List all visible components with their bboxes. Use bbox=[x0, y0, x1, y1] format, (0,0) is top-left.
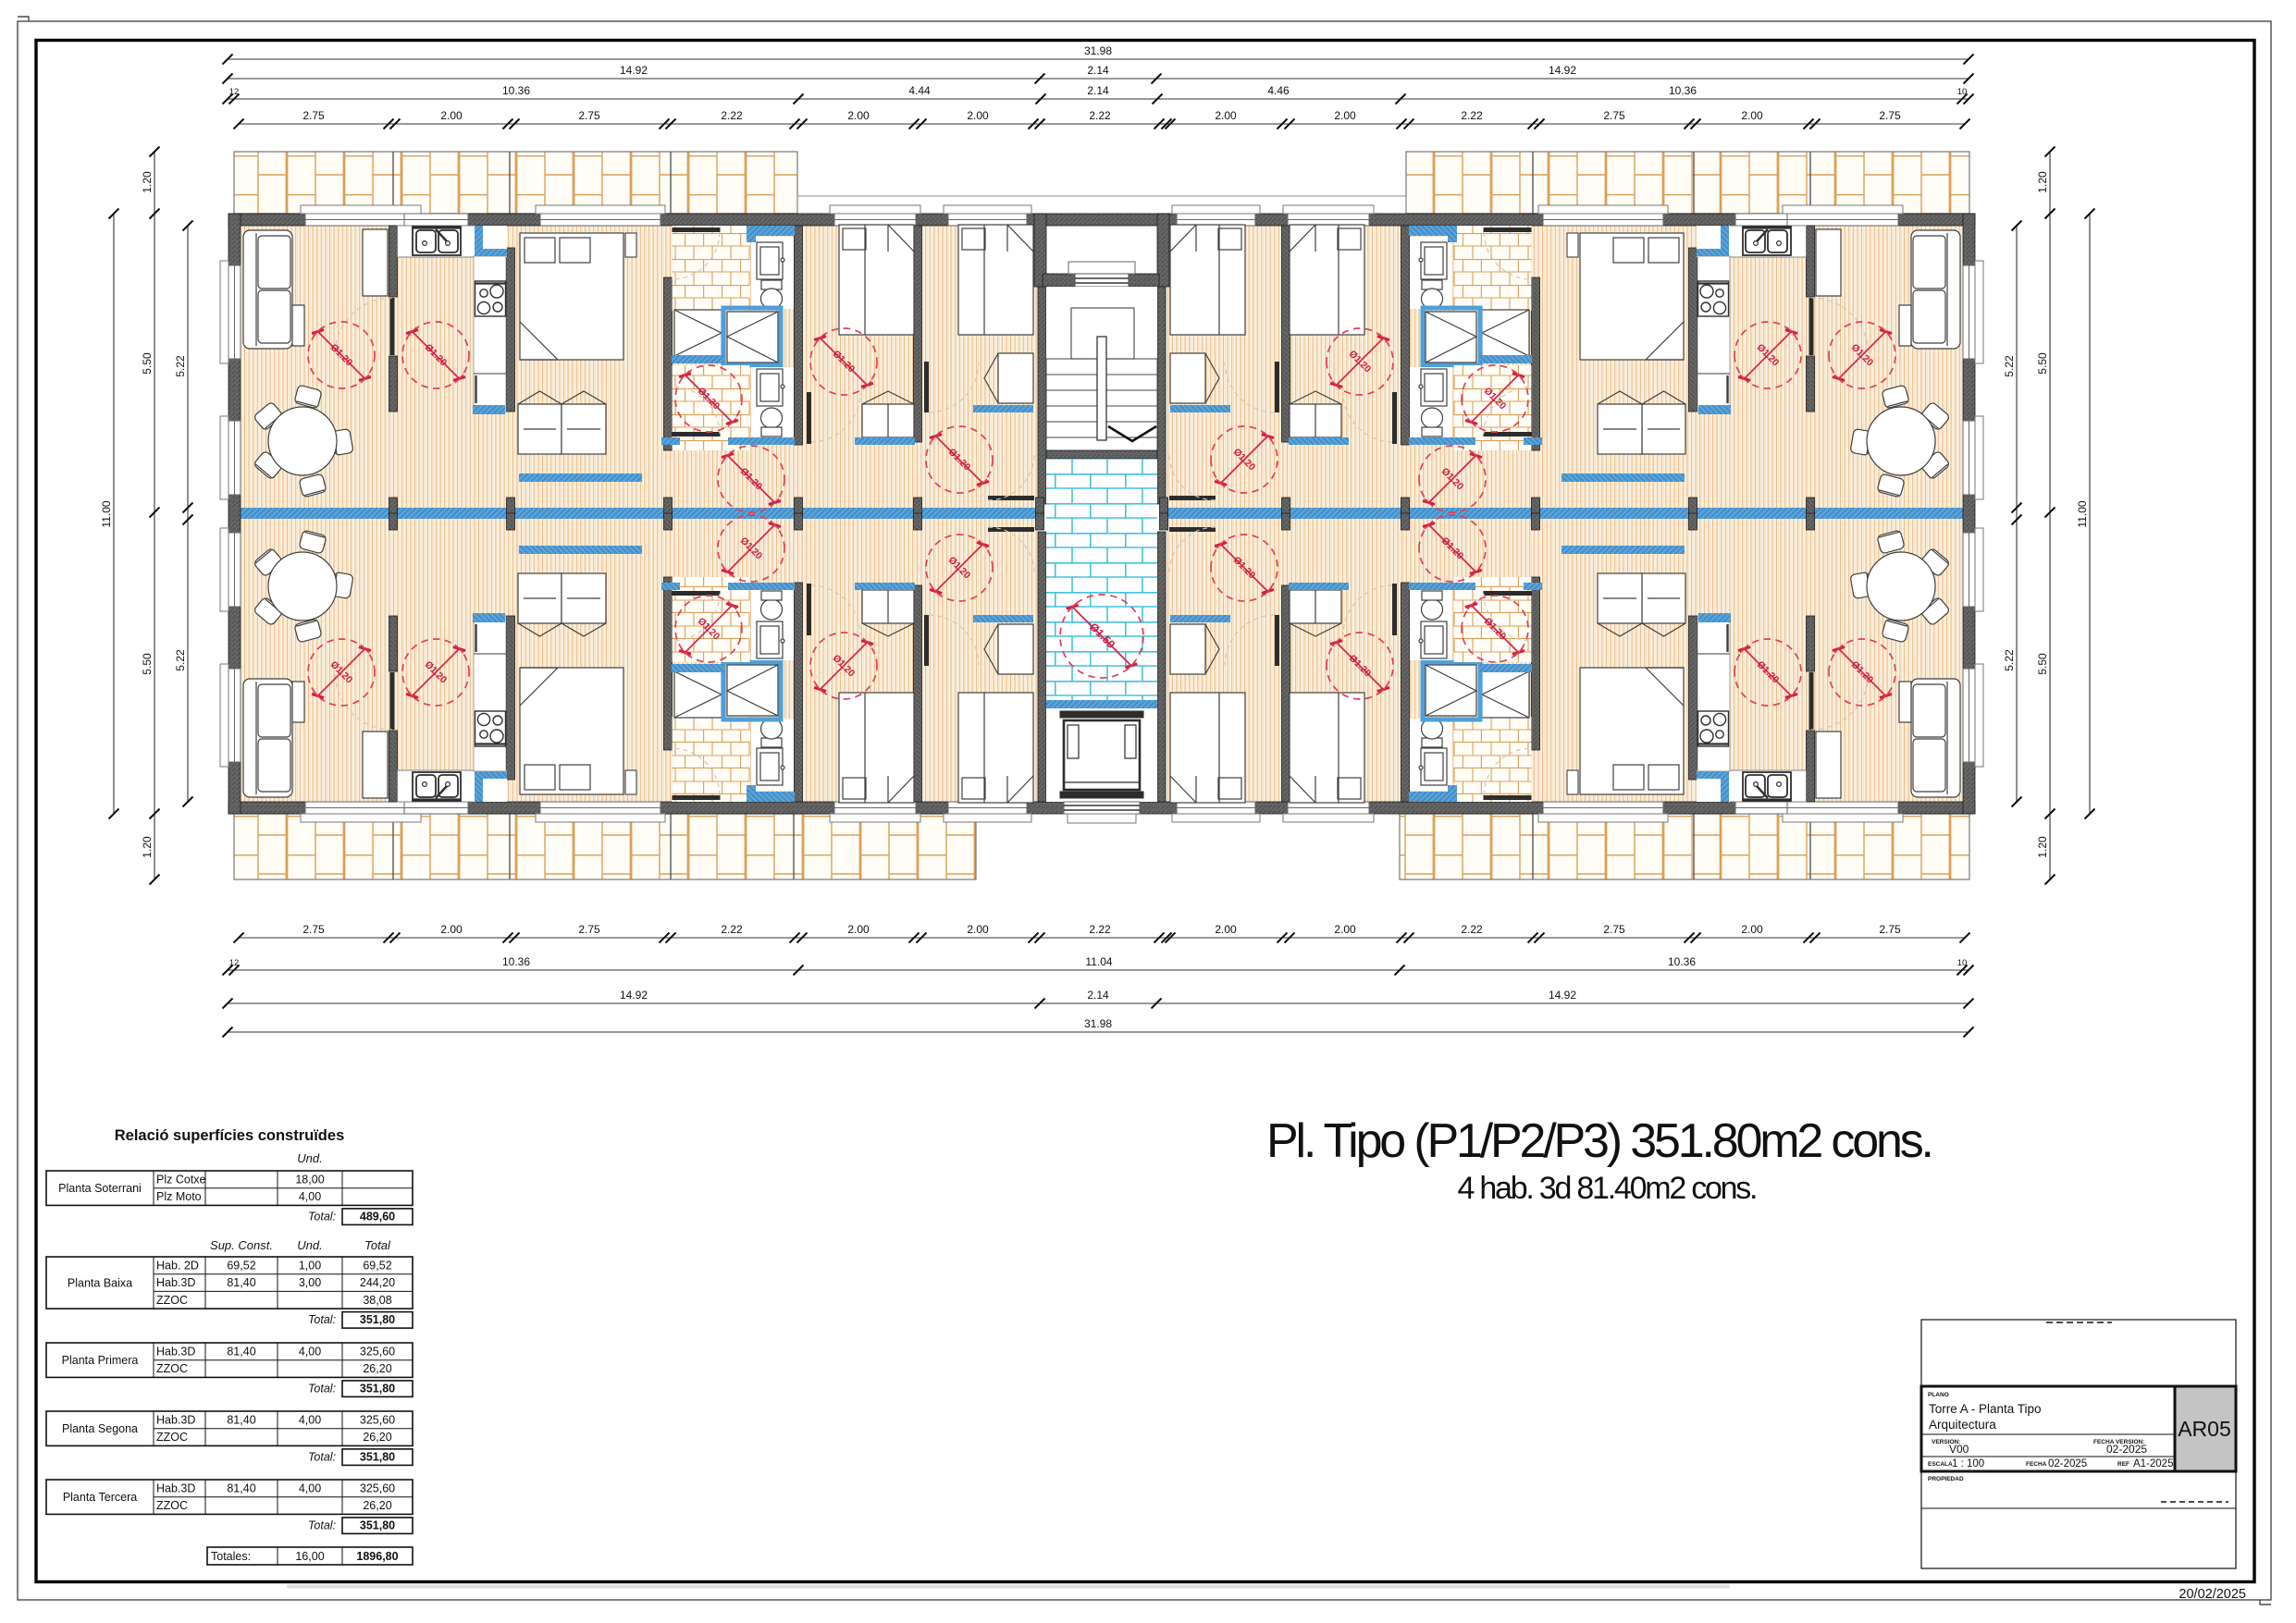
svg-text:244,20: 244,20 bbox=[360, 1276, 395, 1289]
svg-text:81,40: 81,40 bbox=[227, 1346, 255, 1359]
svg-text:5.50: 5.50 bbox=[141, 653, 154, 675]
svg-text:Und.: Und. bbox=[297, 1151, 322, 1165]
svg-text:2.75: 2.75 bbox=[1879, 109, 1901, 122]
svg-text:Sup. Const.: Sup. Const. bbox=[210, 1238, 273, 1252]
svg-text:4,00: 4,00 bbox=[299, 1346, 321, 1359]
svg-text:2.00: 2.00 bbox=[1334, 109, 1356, 122]
svg-text:2.75: 2.75 bbox=[578, 109, 600, 122]
svg-text:02-2025: 02-2025 bbox=[2106, 1443, 2147, 1456]
svg-text:10: 10 bbox=[1957, 87, 1968, 97]
svg-text:2.75: 2.75 bbox=[302, 923, 325, 936]
svg-text:A1-2025: A1-2025 bbox=[2133, 1458, 2173, 1469]
svg-text:2.14: 2.14 bbox=[1087, 64, 1109, 77]
svg-text:5.50: 5.50 bbox=[2036, 653, 2049, 675]
svg-text:1.20: 1.20 bbox=[141, 171, 154, 193]
svg-text:10.36: 10.36 bbox=[1669, 84, 1697, 97]
svg-text:REF: REF bbox=[2117, 1461, 2129, 1468]
svg-text:02-2025: 02-2025 bbox=[2048, 1458, 2087, 1469]
svg-text:PLANO: PLANO bbox=[1928, 1392, 1949, 1398]
svg-text:4,00: 4,00 bbox=[299, 1414, 321, 1427]
svg-text:20/02/2025: 20/02/2025 bbox=[2179, 1587, 2246, 1602]
svg-text:2.00: 2.00 bbox=[1334, 923, 1356, 936]
svg-text:2.22: 2.22 bbox=[1461, 109, 1483, 122]
svg-text:Planta Primera: Planta Primera bbox=[62, 1354, 139, 1367]
svg-text:26,20: 26,20 bbox=[363, 1362, 391, 1375]
svg-text:2.75: 2.75 bbox=[1603, 109, 1625, 122]
svg-text:2.00: 2.00 bbox=[1741, 923, 1763, 936]
svg-text:Und.: Und. bbox=[297, 1238, 322, 1252]
svg-text:14.92: 14.92 bbox=[1549, 64, 1576, 77]
svg-text:325,60: 325,60 bbox=[360, 1482, 395, 1495]
svg-text:5.22: 5.22 bbox=[174, 649, 187, 671]
svg-text:4.46: 4.46 bbox=[1267, 84, 1290, 97]
svg-text:14.92: 14.92 bbox=[620, 64, 648, 77]
svg-text:26,20: 26,20 bbox=[363, 1431, 391, 1444]
svg-text:2.75: 2.75 bbox=[1603, 923, 1625, 936]
svg-text:489,60: 489,60 bbox=[360, 1210, 395, 1223]
svg-text:10.36: 10.36 bbox=[502, 955, 530, 968]
svg-text:16,00: 16,00 bbox=[295, 1550, 324, 1563]
svg-text:1.20: 1.20 bbox=[141, 836, 154, 858]
svg-text:1 : 100: 1 : 100 bbox=[1952, 1458, 1984, 1469]
svg-text:1,00: 1,00 bbox=[299, 1260, 321, 1273]
svg-text:325,60: 325,60 bbox=[360, 1414, 395, 1427]
svg-text:351,80: 351,80 bbox=[360, 1518, 395, 1531]
svg-text:ESCALA: ESCALA bbox=[1928, 1461, 1953, 1468]
svg-text:5.50: 5.50 bbox=[2036, 352, 2049, 375]
svg-text:Planta Soterrani: Planta Soterrani bbox=[58, 1182, 142, 1195]
svg-text:2.00: 2.00 bbox=[1215, 923, 1237, 936]
svg-text:2.22: 2.22 bbox=[721, 923, 743, 936]
svg-text:38,08: 38,08 bbox=[363, 1294, 391, 1307]
svg-text:Planta Baixa: Planta Baixa bbox=[68, 1277, 132, 1290]
svg-text:Arquitectura: Arquitectura bbox=[1929, 1418, 1996, 1432]
svg-text:2.00: 2.00 bbox=[440, 923, 463, 936]
svg-text:351,80: 351,80 bbox=[360, 1382, 395, 1395]
svg-text:4,00: 4,00 bbox=[299, 1482, 321, 1495]
svg-text:Pl. Tipo (P1/P2/P3) 351.80m2 c: Pl. Tipo (P1/P2/P3) 351.80m2 cons. bbox=[1266, 1114, 1934, 1168]
svg-text:ZZOC: ZZOC bbox=[156, 1294, 188, 1307]
svg-text:10.36: 10.36 bbox=[502, 84, 530, 97]
svg-text:2.75: 2.75 bbox=[302, 109, 325, 122]
svg-text:2.22: 2.22 bbox=[1089, 109, 1111, 122]
svg-text:5.22: 5.22 bbox=[2003, 355, 2016, 377]
svg-text:69,52: 69,52 bbox=[363, 1260, 391, 1273]
svg-text:2.14: 2.14 bbox=[1087, 989, 1109, 1002]
svg-text:4 hab. 3d 81.40m2 cons.: 4 hab. 3d 81.40m2 cons. bbox=[1458, 1171, 1759, 1206]
svg-text:PROPIEDAD: PROPIEDAD bbox=[1928, 1476, 1964, 1482]
svg-text:2.22: 2.22 bbox=[1461, 923, 1483, 936]
svg-text:18,00: 18,00 bbox=[295, 1174, 324, 1187]
svg-text:5.50: 5.50 bbox=[141, 352, 154, 375]
svg-text:11.00: 11.00 bbox=[100, 500, 113, 527]
svg-text:5.22: 5.22 bbox=[174, 355, 187, 377]
svg-text:2.14: 2.14 bbox=[1087, 84, 1109, 97]
svg-text:Torre A - Planta Tipo: Torre A - Planta Tipo bbox=[1929, 1402, 2042, 1416]
svg-text:2.00: 2.00 bbox=[1741, 109, 1763, 122]
svg-text:FECHA: FECHA bbox=[2026, 1461, 2047, 1468]
svg-text:Hab.3D: Hab.3D bbox=[156, 1276, 195, 1289]
svg-text:Planta Segona: Planta Segona bbox=[62, 1422, 138, 1435]
svg-text:26,20: 26,20 bbox=[363, 1499, 391, 1512]
svg-text:81,40: 81,40 bbox=[227, 1276, 255, 1289]
svg-text:81,40: 81,40 bbox=[227, 1414, 255, 1427]
svg-text:31.98: 31.98 bbox=[1084, 44, 1112, 57]
svg-text:2.00: 2.00 bbox=[440, 109, 463, 122]
svg-text:ZZOC: ZZOC bbox=[156, 1431, 188, 1444]
svg-text:2.75: 2.75 bbox=[1879, 923, 1901, 936]
svg-text:Plz Cotxe: Plz Cotxe bbox=[156, 1174, 206, 1187]
svg-text:Total:: Total: bbox=[308, 1450, 336, 1463]
svg-text:Plz Moto: Plz Moto bbox=[156, 1190, 202, 1203]
svg-text:10.36: 10.36 bbox=[1668, 955, 1696, 968]
svg-text:2.00: 2.00 bbox=[1215, 109, 1237, 122]
svg-text:351,80: 351,80 bbox=[360, 1313, 395, 1326]
svg-text:Hab.3D: Hab.3D bbox=[156, 1482, 195, 1495]
svg-text:AR05: AR05 bbox=[2178, 1417, 2231, 1441]
svg-text:V00: V00 bbox=[1949, 1443, 1969, 1456]
svg-text:2.00: 2.00 bbox=[847, 923, 870, 936]
svg-text:2.00: 2.00 bbox=[967, 923, 989, 936]
svg-text:2.00: 2.00 bbox=[847, 109, 870, 122]
svg-text:69,52: 69,52 bbox=[227, 1260, 255, 1273]
svg-text:2.00: 2.00 bbox=[967, 109, 989, 122]
svg-text:1896,80: 1896,80 bbox=[356, 1550, 398, 1563]
svg-text:Hab. 2D: Hab. 2D bbox=[156, 1260, 199, 1273]
svg-text:Total:: Total: bbox=[308, 1382, 336, 1395]
svg-text:3,00: 3,00 bbox=[299, 1276, 321, 1289]
svg-text:5.22: 5.22 bbox=[2003, 649, 2016, 671]
svg-text:Total: Total bbox=[364, 1238, 391, 1252]
svg-text:11.04: 11.04 bbox=[1085, 955, 1112, 968]
svg-text:14.92: 14.92 bbox=[620, 989, 648, 1002]
svg-text:Hab.3D: Hab.3D bbox=[156, 1414, 195, 1427]
svg-text:ZZOC: ZZOC bbox=[156, 1499, 188, 1512]
svg-text:325,60: 325,60 bbox=[360, 1346, 395, 1359]
svg-text:11.00: 11.00 bbox=[2076, 500, 2089, 527]
svg-text:2.75: 2.75 bbox=[578, 923, 600, 936]
svg-text:4,00: 4,00 bbox=[299, 1190, 321, 1203]
svg-text:1.20: 1.20 bbox=[2036, 836, 2049, 858]
svg-text:ZZOC: ZZOC bbox=[156, 1362, 188, 1375]
svg-text:Planta Tercera: Planta Tercera bbox=[63, 1491, 137, 1504]
svg-text:81,40: 81,40 bbox=[227, 1482, 255, 1495]
svg-text:Hab.3D: Hab.3D bbox=[156, 1346, 195, 1359]
svg-text:Relació superfícies construïde: Relació superfícies construïdes bbox=[115, 1127, 345, 1144]
svg-text:31.98: 31.98 bbox=[1084, 1017, 1112, 1030]
svg-text:Total:: Total: bbox=[308, 1313, 336, 1326]
svg-text:4.44: 4.44 bbox=[908, 84, 931, 97]
svg-text:351,80: 351,80 bbox=[360, 1450, 395, 1463]
svg-text:12: 12 bbox=[229, 958, 240, 968]
svg-text:Total:: Total: bbox=[308, 1518, 336, 1531]
svg-text:2.22: 2.22 bbox=[721, 109, 743, 122]
svg-text:Totales:: Totales: bbox=[211, 1550, 251, 1563]
svg-text:10: 10 bbox=[1957, 958, 1968, 968]
svg-text:2.22: 2.22 bbox=[1089, 923, 1111, 936]
svg-text:Total:: Total: bbox=[308, 1210, 336, 1223]
svg-text:12: 12 bbox=[229, 87, 240, 97]
svg-text:1.20: 1.20 bbox=[2036, 171, 2049, 193]
svg-text:14.92: 14.92 bbox=[1549, 989, 1576, 1002]
